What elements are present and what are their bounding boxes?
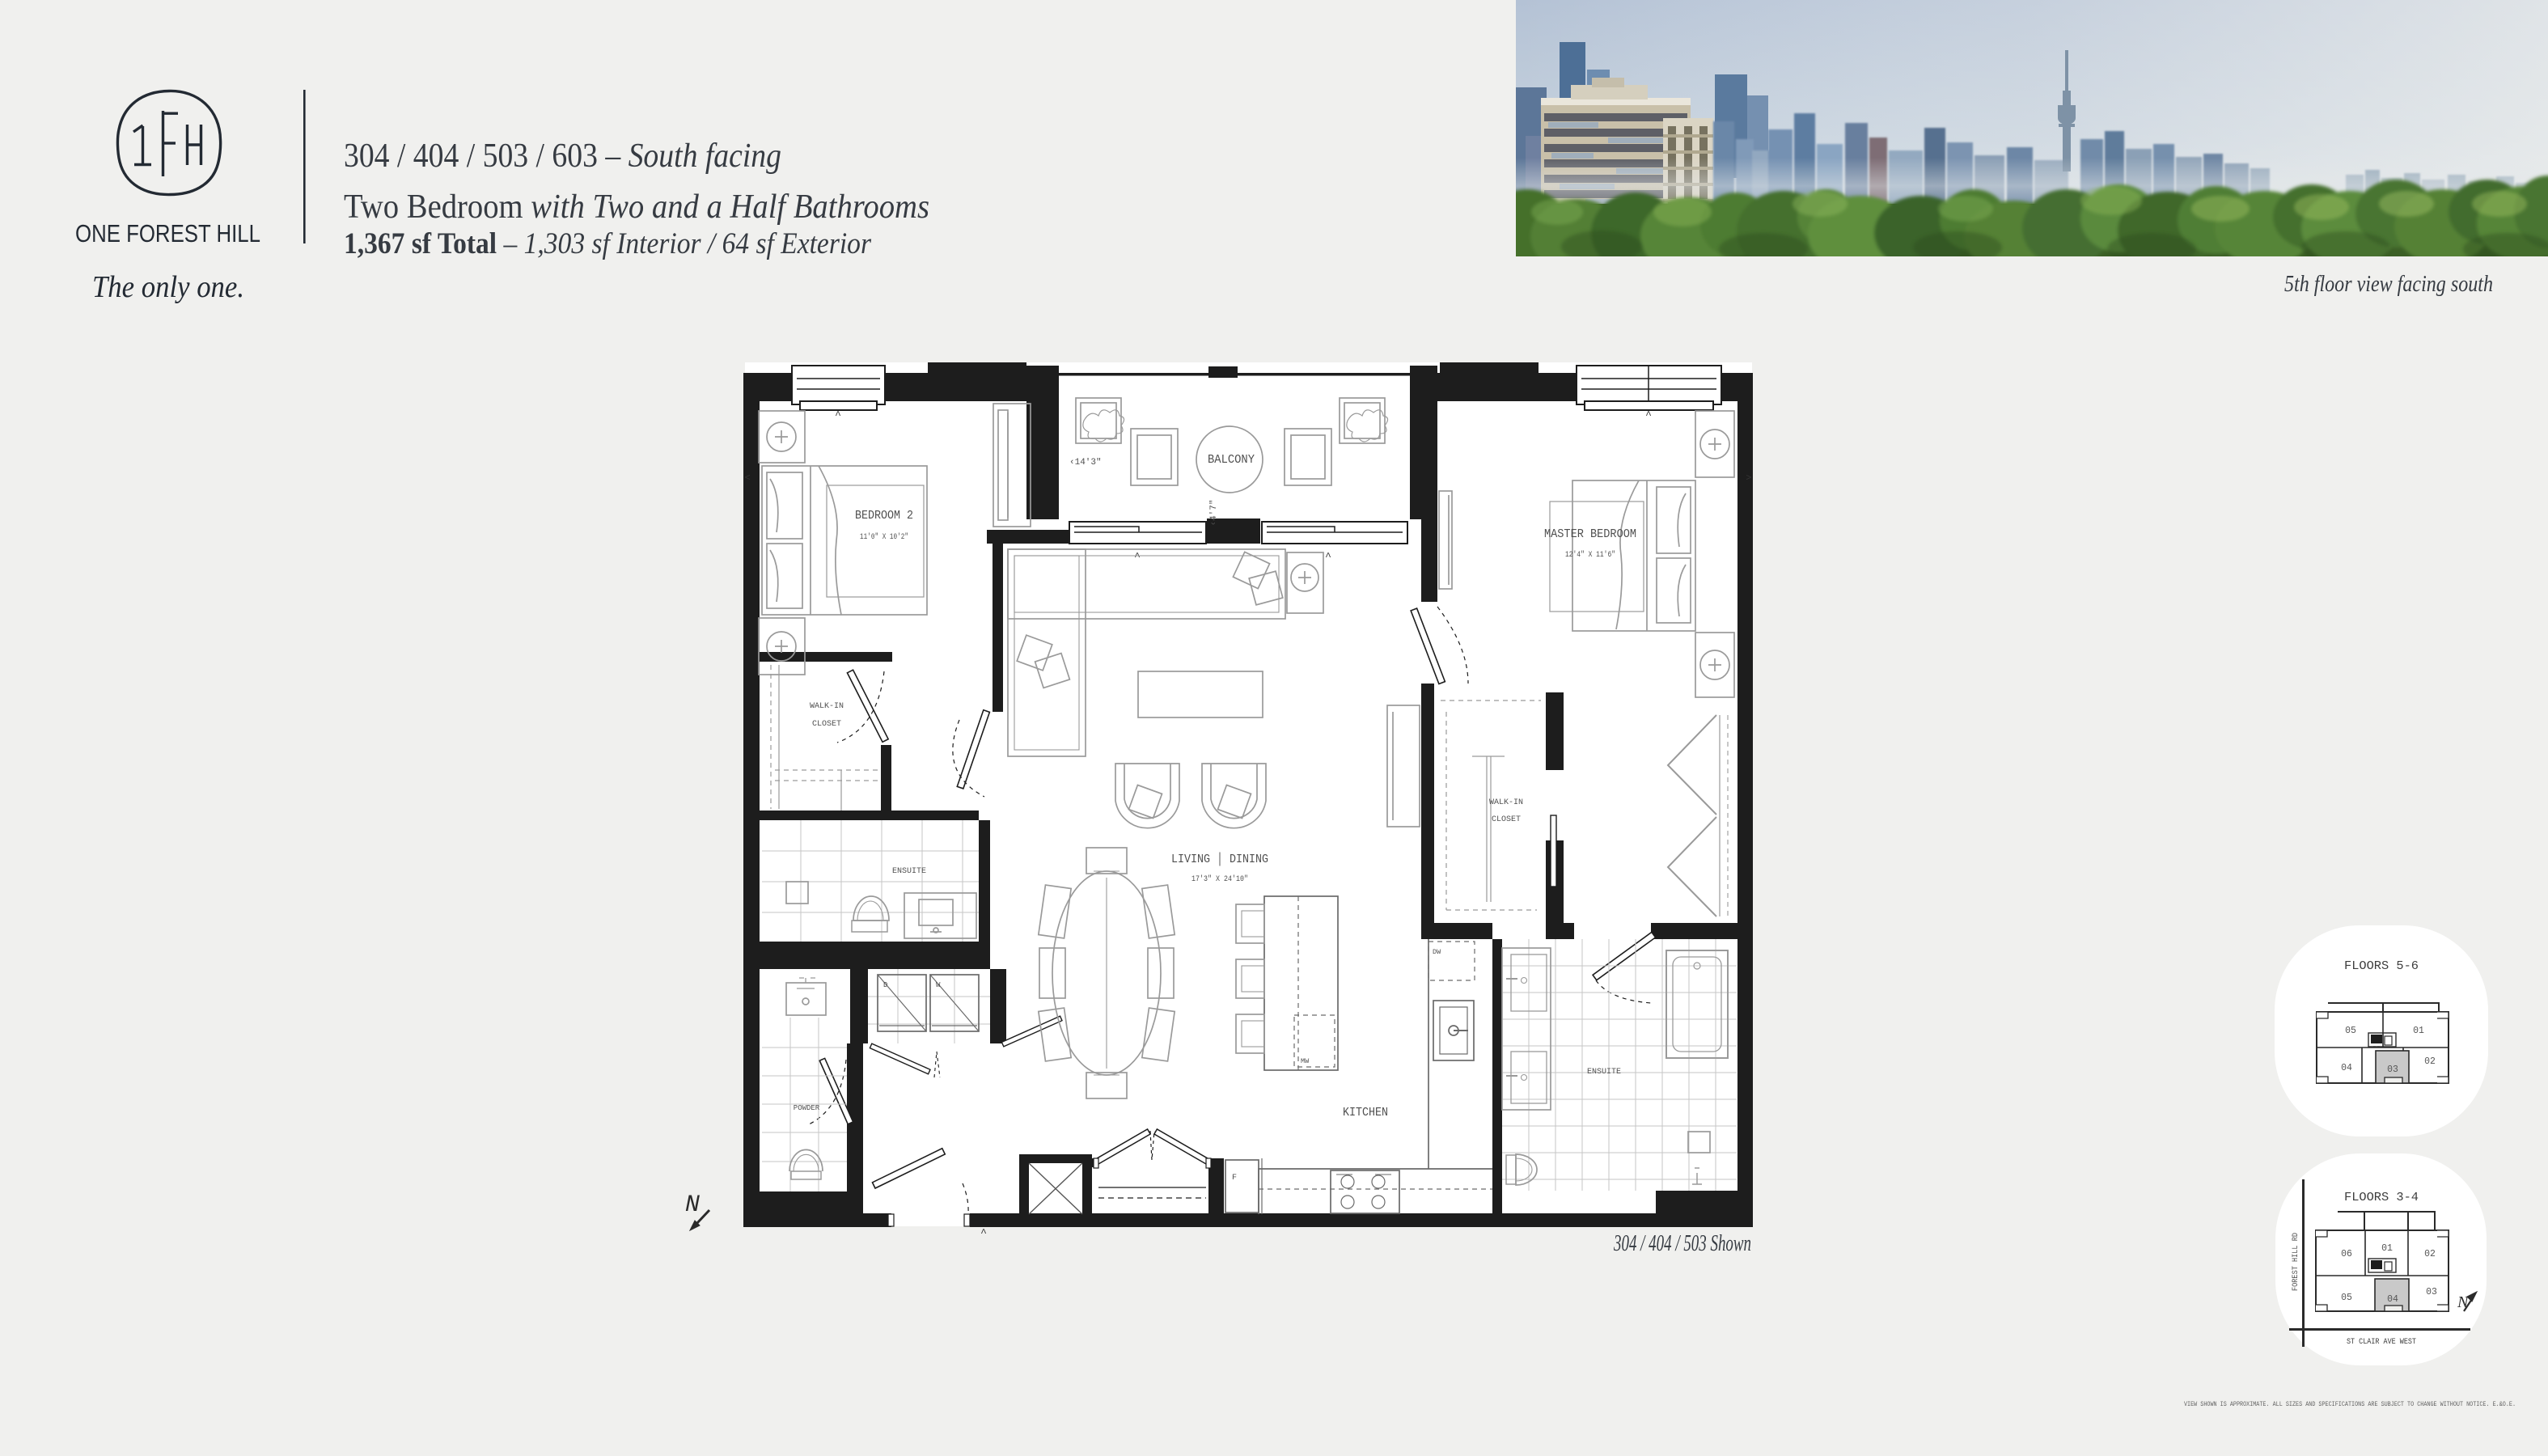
svg-text:‹4'7": ‹4'7" <box>1209 499 1219 526</box>
svg-text:03: 03 <box>2426 1287 2437 1297</box>
svg-text:CLOSET: CLOSET <box>1492 815 1521 824</box>
svg-text:ENSUITE: ENSUITE <box>892 867 926 876</box>
svg-text:ST CLAIR AVE WEST: ST CLAIR AVE WEST <box>2347 1337 2416 1347</box>
svg-text:04: 04 <box>2387 1294 2398 1305</box>
svg-text:FLOORS 5-6: FLOORS 5-6 <box>2344 959 2419 973</box>
svg-text:KITCHEN: KITCHEN <box>1343 1106 1388 1120</box>
svg-text:The only one.: The only one. <box>92 270 244 304</box>
svg-text:N: N <box>2457 1293 2470 1311</box>
svg-text:01: 01 <box>2381 1243 2393 1254</box>
svg-text:12'4" X 11'6": 12'4" X 11'6" <box>1565 550 1615 560</box>
svg-text:03: 03 <box>2387 1064 2398 1075</box>
svg-text:Two Bedroom with Two and a Hal: Two Bedroom with Two and a Half Bathroom… <box>344 188 929 226</box>
svg-text:FOREST HILL RD: FOREST HILL RD <box>2292 1233 2300 1291</box>
svg-text:‹14'3": ‹14'3" <box>1069 458 1102 468</box>
svg-text:ENSUITE: ENSUITE <box>1587 1068 1621 1077</box>
svg-text:05: 05 <box>2345 1026 2356 1036</box>
svg-text:^: ^ <box>1325 551 1331 563</box>
svg-text:1,367 sf Total – 1,303 sf Inte: 1,367 sf Total – 1,303 sf Interior / 64 … <box>344 227 872 260</box>
svg-text:VIEW SHOWN IS APPROXIMATE. ALL: VIEW SHOWN IS APPROXIMATE. ALL SIZES AND… <box>2184 1400 2516 1408</box>
svg-text:ONE FOREST HILL: ONE FOREST HILL <box>75 219 260 248</box>
svg-text:11'0" X 10'2": 11'0" X 10'2" <box>860 532 908 542</box>
svg-text:MASTER BEDROOM: MASTER BEDROOM <box>1544 527 1636 541</box>
svg-text:CLOSET: CLOSET <box>812 720 841 729</box>
svg-text:W: W <box>936 981 941 989</box>
svg-text:5th floor view facing south: 5th floor view facing south <box>2284 272 2493 297</box>
svg-text:^: ^ <box>1134 551 1141 563</box>
svg-text:WALK-IN: WALK-IN <box>1489 798 1523 807</box>
svg-text:D: D <box>883 981 887 989</box>
svg-text:FLOORS 3-4: FLOORS 3-4 <box>2344 1191 2419 1204</box>
svg-text:N: N <box>685 1191 700 1219</box>
svg-text:BALCONY: BALCONY <box>1208 453 1255 467</box>
svg-text:F: F <box>1232 1174 1237 1183</box>
svg-text:LIVING │ DINING: LIVING │ DINING <box>1171 852 1268 866</box>
svg-text:304 / 404 / 503 Shown: 304 / 404 / 503 Shown <box>1613 1231 1751 1256</box>
svg-text:POWDER: POWDER <box>794 1104 820 1112</box>
svg-text:01: 01 <box>2413 1026 2424 1036</box>
svg-text:05: 05 <box>2341 1293 2352 1303</box>
svg-text:06: 06 <box>2341 1249 2352 1259</box>
svg-text:^: ^ <box>743 474 756 480</box>
svg-text:^: ^ <box>835 409 841 421</box>
svg-text:DW: DW <box>1433 948 1441 956</box>
svg-text:02: 02 <box>2424 1056 2436 1067</box>
svg-text:BEDROOM 2: BEDROOM 2 <box>855 509 913 523</box>
svg-text:17'3" X 24'10": 17'3" X 24'10" <box>1191 874 1248 884</box>
svg-text:304 / 404 / 503 / 603 – South: 304 / 404 / 503 / 603 – South facing <box>344 138 781 175</box>
svg-text:^: ^ <box>1741 474 1753 480</box>
svg-text:^: ^ <box>980 1227 987 1239</box>
svg-text:^: ^ <box>1645 409 1652 421</box>
svg-text:04: 04 <box>2341 1063 2352 1073</box>
svg-text:02: 02 <box>2424 1249 2436 1259</box>
svg-text:WALK-IN: WALK-IN <box>810 702 844 711</box>
svg-text:MW: MW <box>1301 1057 1310 1065</box>
